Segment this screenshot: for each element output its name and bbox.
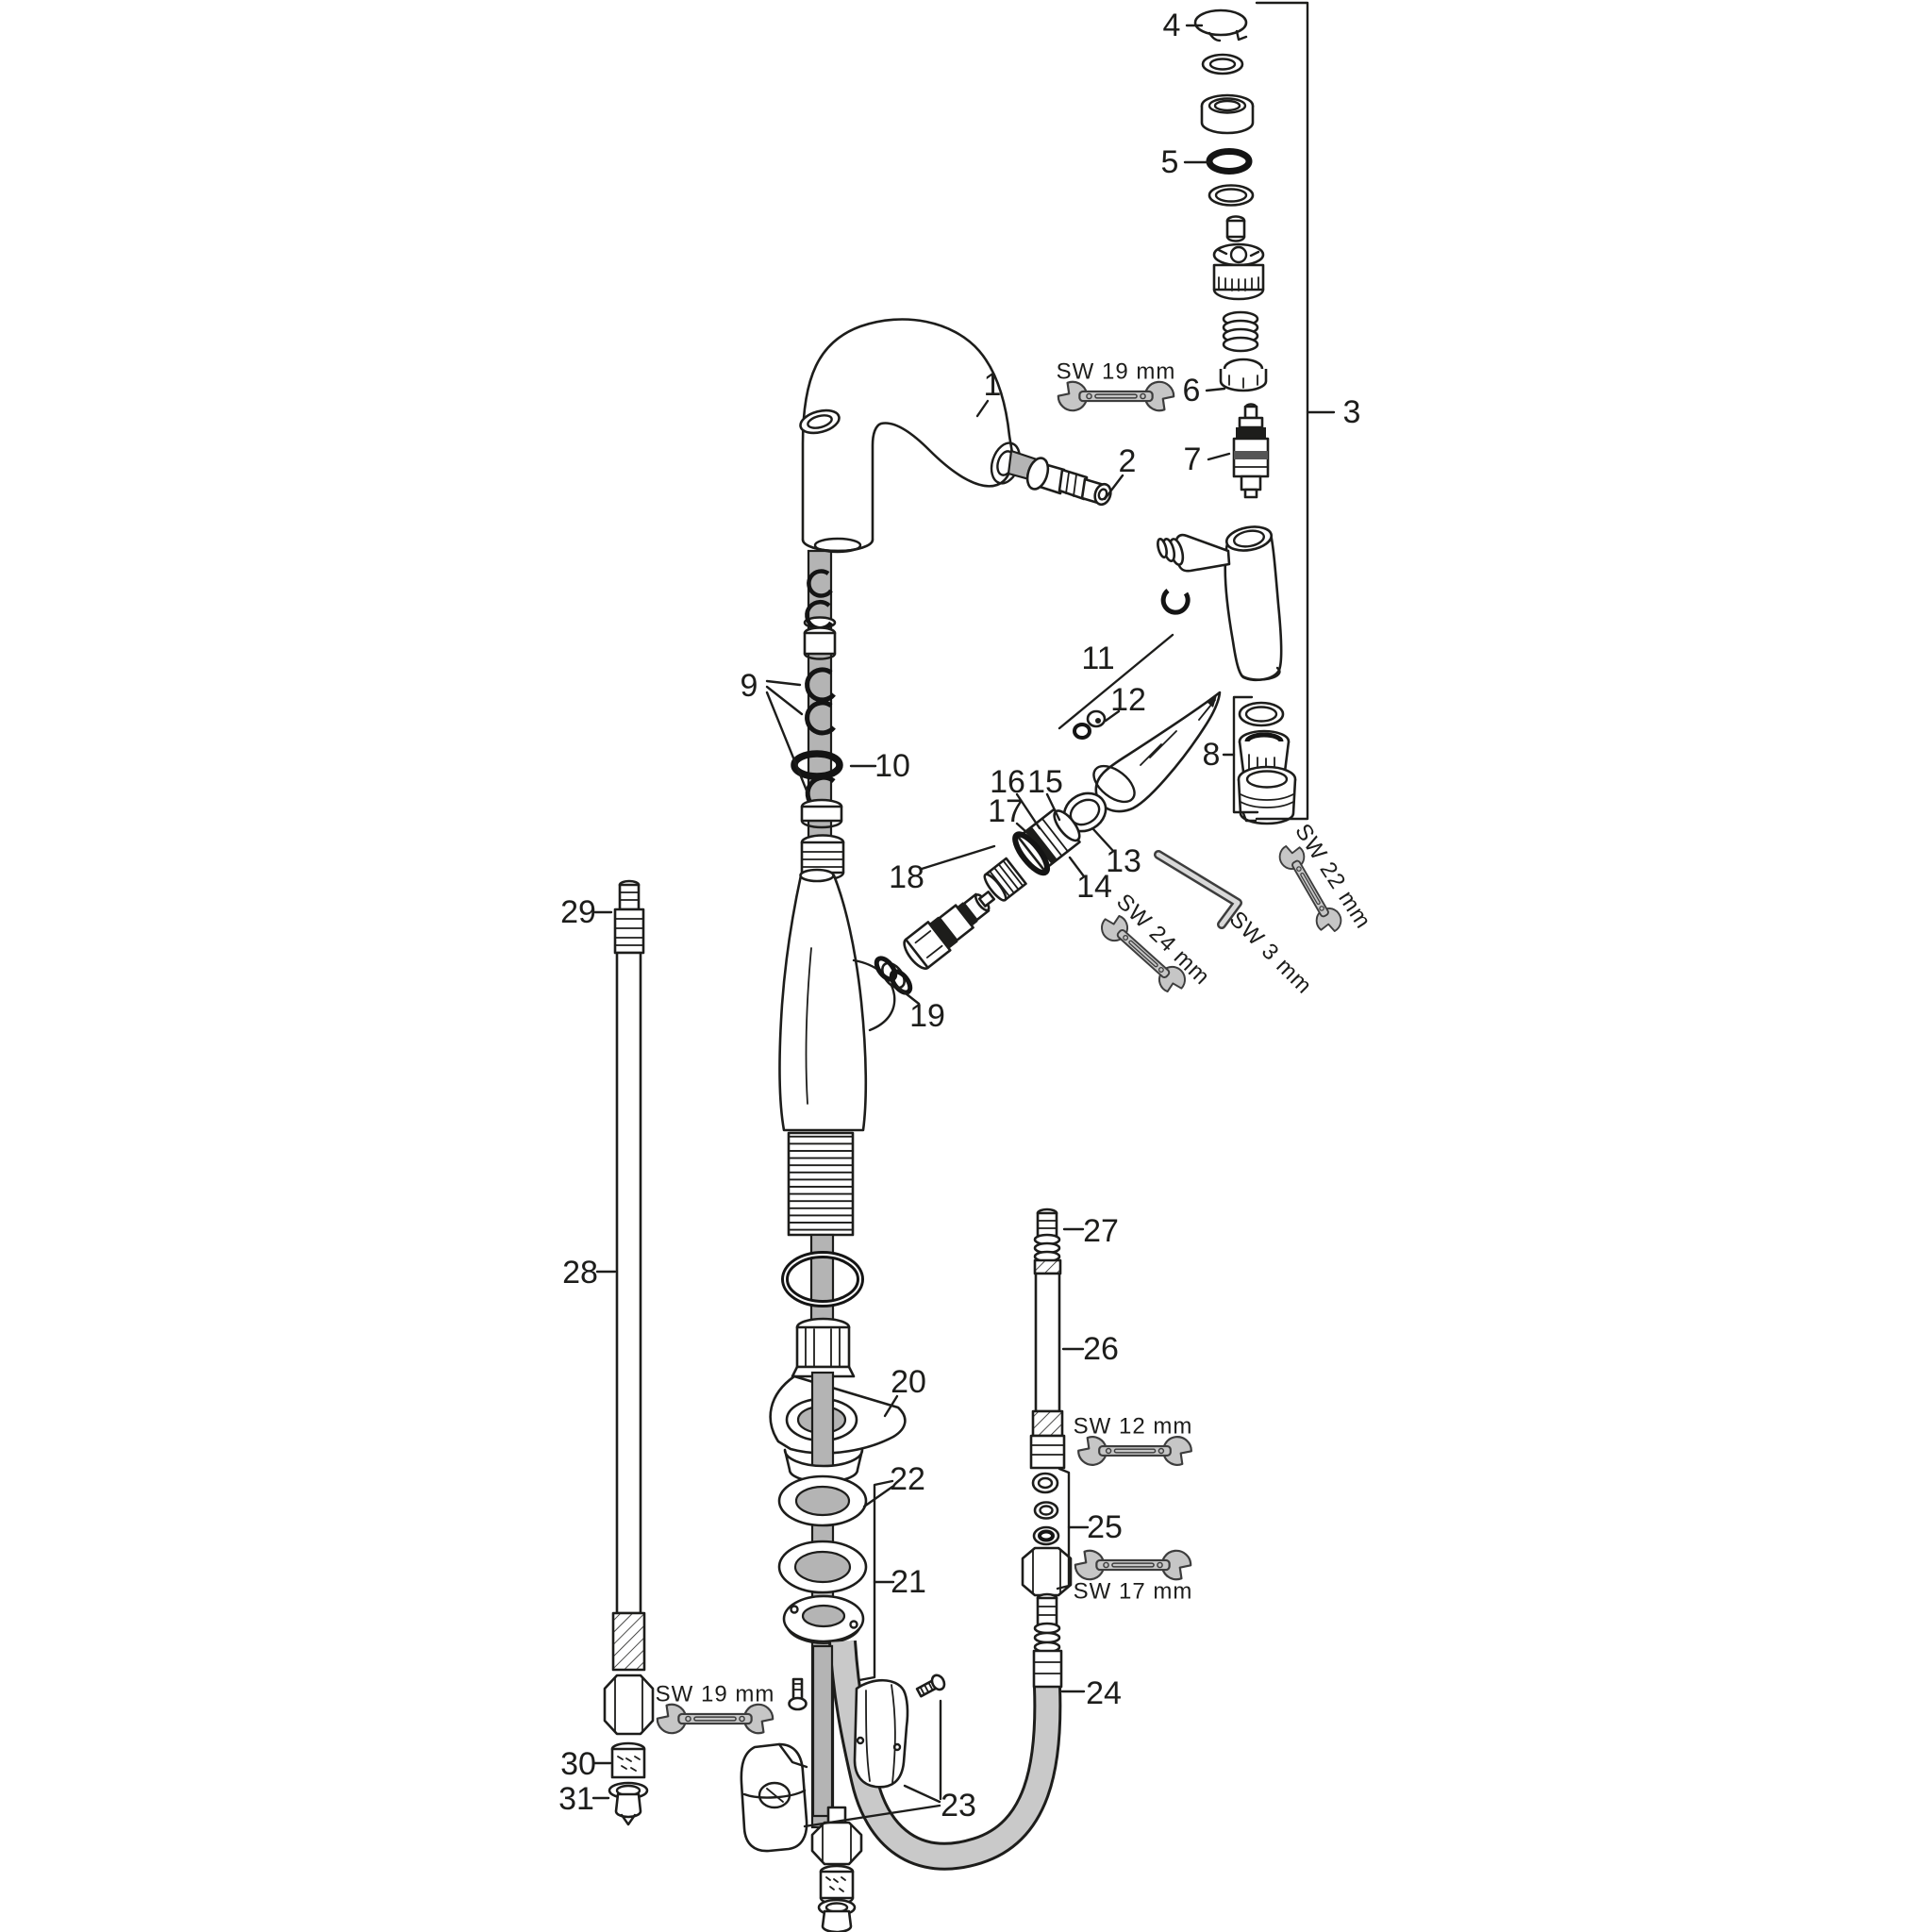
wrench-icon	[1078, 1437, 1191, 1465]
callout-25: 25	[1087, 1509, 1123, 1545]
exploded-diagram: 1234567891011121314151617181920212223242…	[0, 0, 1932, 1932]
callout-24: 24	[1086, 1675, 1122, 1711]
callout-26: 26	[1083, 1331, 1119, 1367]
tool-label-sw17: SW 17 mm	[1074, 1579, 1193, 1605]
callout-27: 27	[1083, 1213, 1119, 1249]
hose-28-nut	[605, 1675, 653, 1734]
callout-3: 3	[1343, 394, 1361, 430]
callout-2: 2	[1119, 443, 1137, 479]
callout-12: 12	[1110, 682, 1146, 718]
allen-key-icon	[1158, 855, 1238, 924]
cartridge-7	[1234, 405, 1268, 498]
callout-30: 30	[560, 1746, 596, 1782]
connector-27	[1038, 1213, 1057, 1236]
callout-4: 4	[1163, 8, 1181, 43]
wrench-icon	[658, 1705, 773, 1733]
callout-5: 5	[1161, 144, 1179, 180]
callout-1: 1	[984, 367, 1002, 403]
callout-20: 20	[891, 1364, 926, 1400]
spray-cone	[1088, 692, 1220, 811]
spray-head	[1157, 524, 1282, 680]
spout	[798, 319, 1024, 552]
tool-label-sw19-bottom: SW 19 mm	[656, 1682, 775, 1707]
wrench-icon	[1058, 382, 1174, 410]
aerator-8	[1239, 703, 1295, 824]
c-clip	[1163, 591, 1188, 612]
callout-29: 29	[560, 894, 596, 930]
callout-9: 9	[741, 668, 758, 704]
callout-23: 23	[941, 1788, 976, 1824]
cartridge-stack	[1195, 10, 1268, 497]
spray-small-parts-11-12	[1074, 711, 1105, 738]
spout-connector	[1008, 451, 1113, 507]
riser-tube-mid	[811, 1235, 833, 1325]
callout-19: 19	[909, 998, 945, 1034]
callout-11: 11	[1081, 641, 1114, 676]
holder-screw	[915, 1674, 946, 1700]
spray-hose-right	[1023, 1209, 1071, 1687]
o-ring-5	[1209, 152, 1249, 172]
handle-cap-4	[1195, 10, 1246, 35]
tool-label-sw3: SW 3 mm	[1224, 907, 1318, 1000]
callout-15: 15	[1027, 764, 1063, 800]
hose-26-tube	[1036, 1274, 1059, 1411]
exploded-diagram-page: 1234567891011121314151617181920212223242…	[0, 0, 1932, 1932]
hose-weight-23	[741, 1744, 807, 1851]
callout-28: 28	[562, 1255, 598, 1291]
tool-label-sw19-top: SW 19 mm	[1057, 359, 1176, 385]
callout-18: 18	[889, 859, 924, 895]
flange-screw-b	[790, 1679, 807, 1709]
callout-21: 21	[891, 1564, 926, 1600]
hose-nut	[812, 1823, 861, 1864]
faucet-body	[780, 870, 914, 1235]
supply-hose-left	[605, 881, 653, 1824]
tool-label-sw12: SW 12 mm	[1074, 1414, 1193, 1440]
callout-22: 22	[890, 1461, 925, 1497]
callout-7: 7	[1184, 441, 1202, 477]
callout-8: 8	[1203, 737, 1221, 773]
callout-14: 14	[1076, 869, 1112, 905]
callout-10: 10	[874, 748, 910, 784]
callout-6: 6	[1183, 373, 1201, 408]
callout-31: 31	[558, 1781, 594, 1817]
hose-holder-bracket	[855, 1674, 947, 1788]
callout-17: 17	[988, 793, 1024, 829]
riser-end-fittings	[812, 1807, 861, 1932]
riser-tube-bottom	[813, 1646, 832, 1816]
wrench-icon	[1075, 1551, 1191, 1579]
hose-28-tube	[617, 953, 641, 1613]
